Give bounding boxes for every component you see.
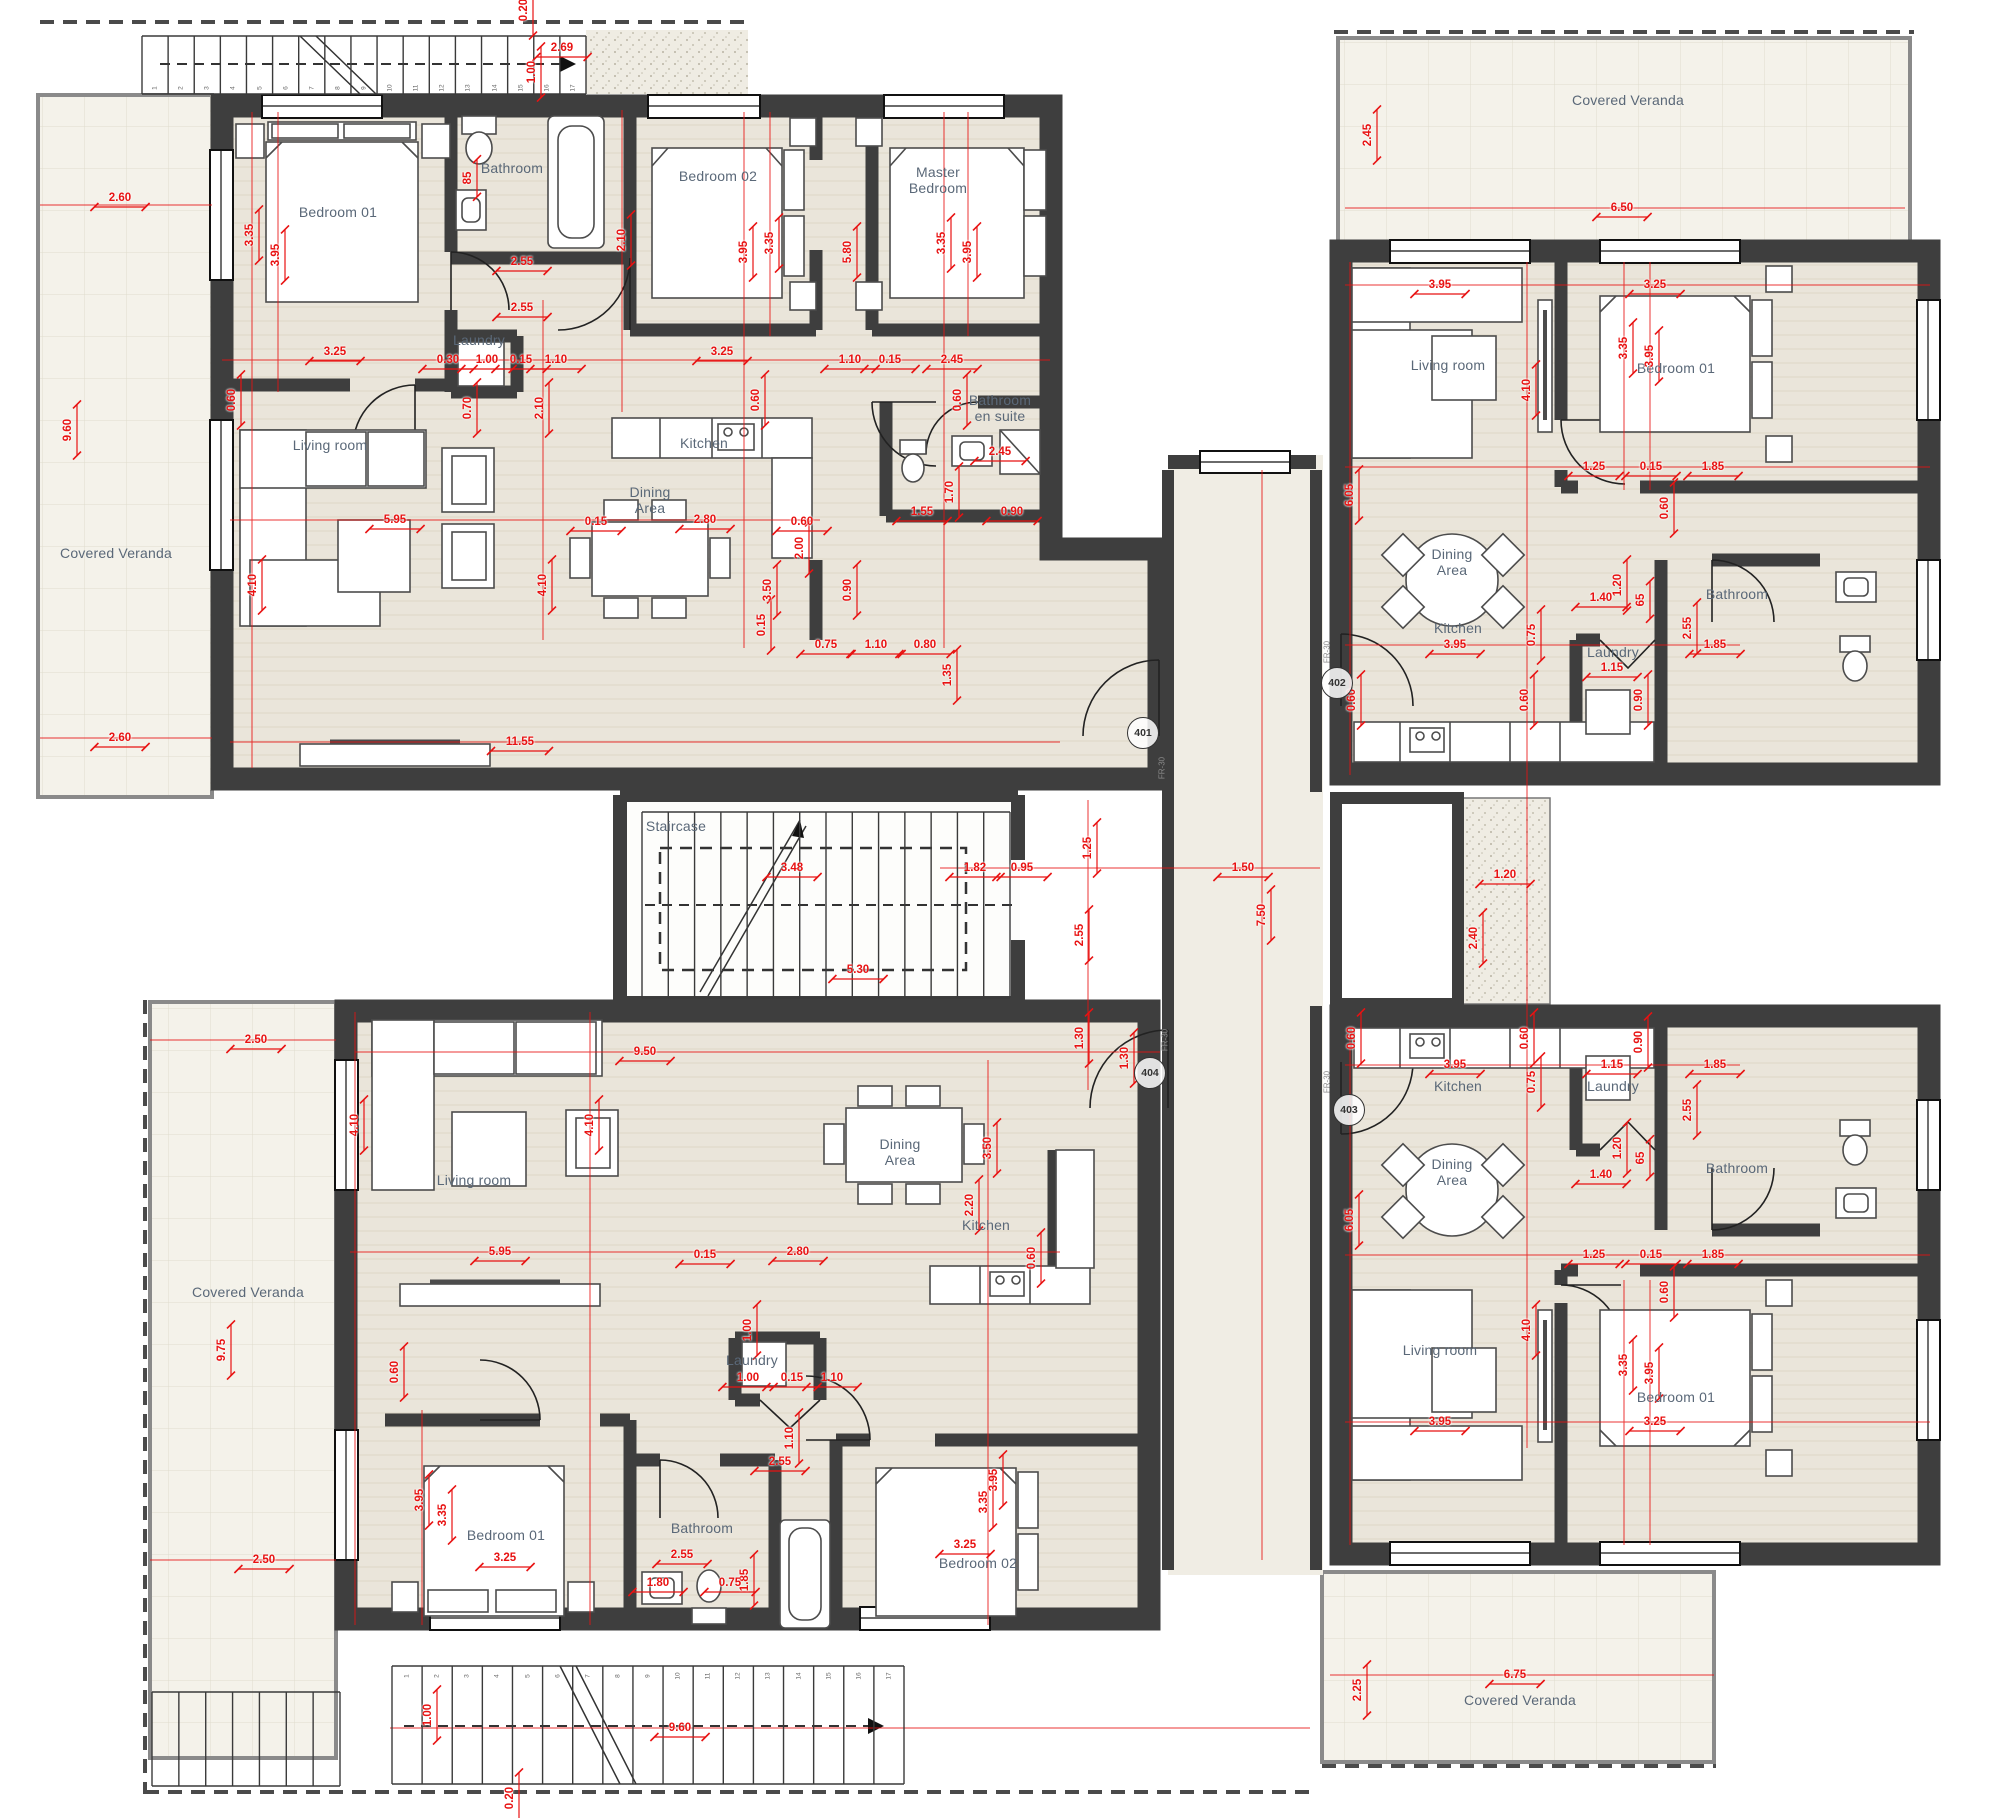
sink: [1836, 1188, 1876, 1218]
staircase-floor: [620, 795, 1020, 1007]
toilet: [900, 440, 926, 482]
window: [1917, 1100, 1940, 1190]
stipple-top: [586, 30, 748, 94]
window: [1390, 240, 1530, 263]
window: [1200, 451, 1290, 473]
veranda-bottom-left: [150, 1002, 336, 1758]
toilet: [1840, 1120, 1870, 1165]
coffee-table: [1432, 336, 1496, 400]
tv-unit: [400, 1282, 600, 1306]
window: [210, 150, 233, 280]
toilet: [1840, 636, 1870, 681]
window: [210, 420, 233, 570]
washing-machine: [742, 1342, 786, 1386]
veranda-top-right: [1338, 38, 1910, 242]
coffee-table: [452, 1112, 526, 1186]
window: [1390, 1542, 1530, 1565]
window: [648, 95, 760, 118]
lightwell-zone: [1323, 790, 1940, 1008]
sink: [1836, 572, 1876, 602]
coffee-table: [338, 520, 410, 592]
bed: [236, 122, 450, 302]
corridor-floor: [1168, 455, 1323, 1575]
tv-unit: [300, 742, 490, 766]
floor-plan-canvas: Covered VerandaBedroom 01BathroomLaundry…: [0, 0, 2000, 1818]
floor-plan-drawing: [0, 0, 2000, 1818]
window: [1917, 300, 1940, 420]
window: [1600, 240, 1740, 263]
sink: [642, 1572, 682, 1604]
window: [1917, 560, 1940, 660]
apartment-403-floor: [1330, 1005, 1940, 1565]
armchair: [566, 1110, 618, 1176]
washing-machine: [1586, 690, 1630, 734]
light-well: [1462, 798, 1550, 1004]
bed: [876, 1468, 1038, 1616]
bathtub: [548, 116, 604, 248]
sink: [456, 190, 486, 230]
veranda-bottom-right: [1322, 1572, 1714, 1762]
window: [262, 95, 382, 118]
armchair: [442, 524, 494, 588]
armchair: [442, 448, 494, 512]
veranda-top-left: [38, 95, 212, 797]
shower: [1000, 430, 1040, 474]
washing-machine: [1586, 1056, 1630, 1100]
window: [1600, 1542, 1740, 1565]
bathtub: [780, 1520, 830, 1628]
coffee-table: [1432, 1348, 1496, 1412]
